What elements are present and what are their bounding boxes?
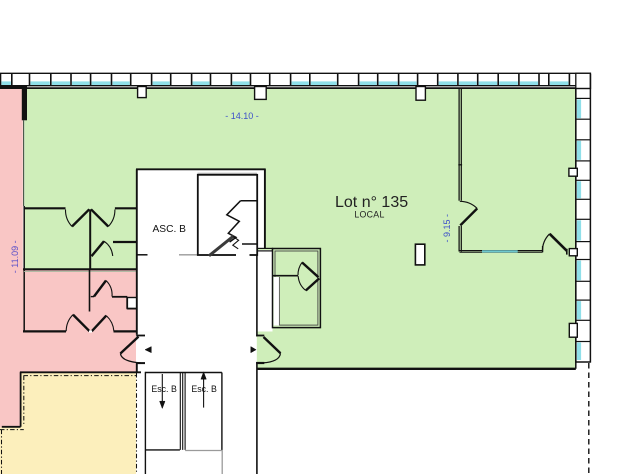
svg-text:- 9.15 -: - 9.15 - — [442, 214, 452, 243]
svg-text:ASC. B: ASC. B — [153, 224, 187, 235]
svg-text:- 11.09 -: - 11.09 - — [10, 240, 20, 273]
svg-text:LOCAL: LOCAL — [354, 209, 384, 219]
svg-text:Esc. B: Esc. B — [191, 384, 217, 394]
svg-text:- 14.10 -: - 14.10 - — [225, 111, 259, 121]
svg-text:Esc. B: Esc. B — [151, 384, 177, 394]
svg-text:Lot n° 135: Lot n° 135 — [335, 194, 408, 211]
